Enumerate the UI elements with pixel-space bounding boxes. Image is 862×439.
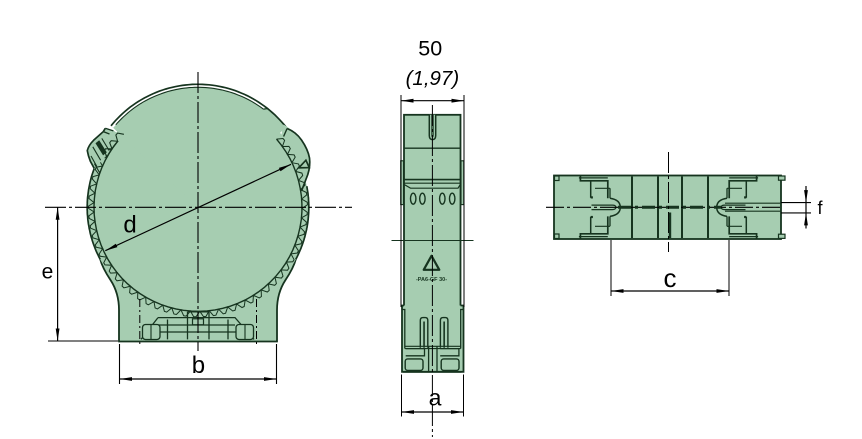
svg-text:-PA6-GF 30-: -PA6-GF 30- [416, 277, 447, 283]
svg-text:d: d [123, 212, 136, 239]
svg-text:e: e [42, 261, 54, 284]
svg-text:b: b [192, 352, 205, 379]
svg-text:(1,97): (1,97) [406, 67, 460, 90]
svg-text:c: c [664, 263, 677, 293]
svg-text:a: a [429, 385, 442, 411]
svg-text:f: f [817, 198, 823, 218]
svg-text:50: 50 [418, 36, 442, 60]
